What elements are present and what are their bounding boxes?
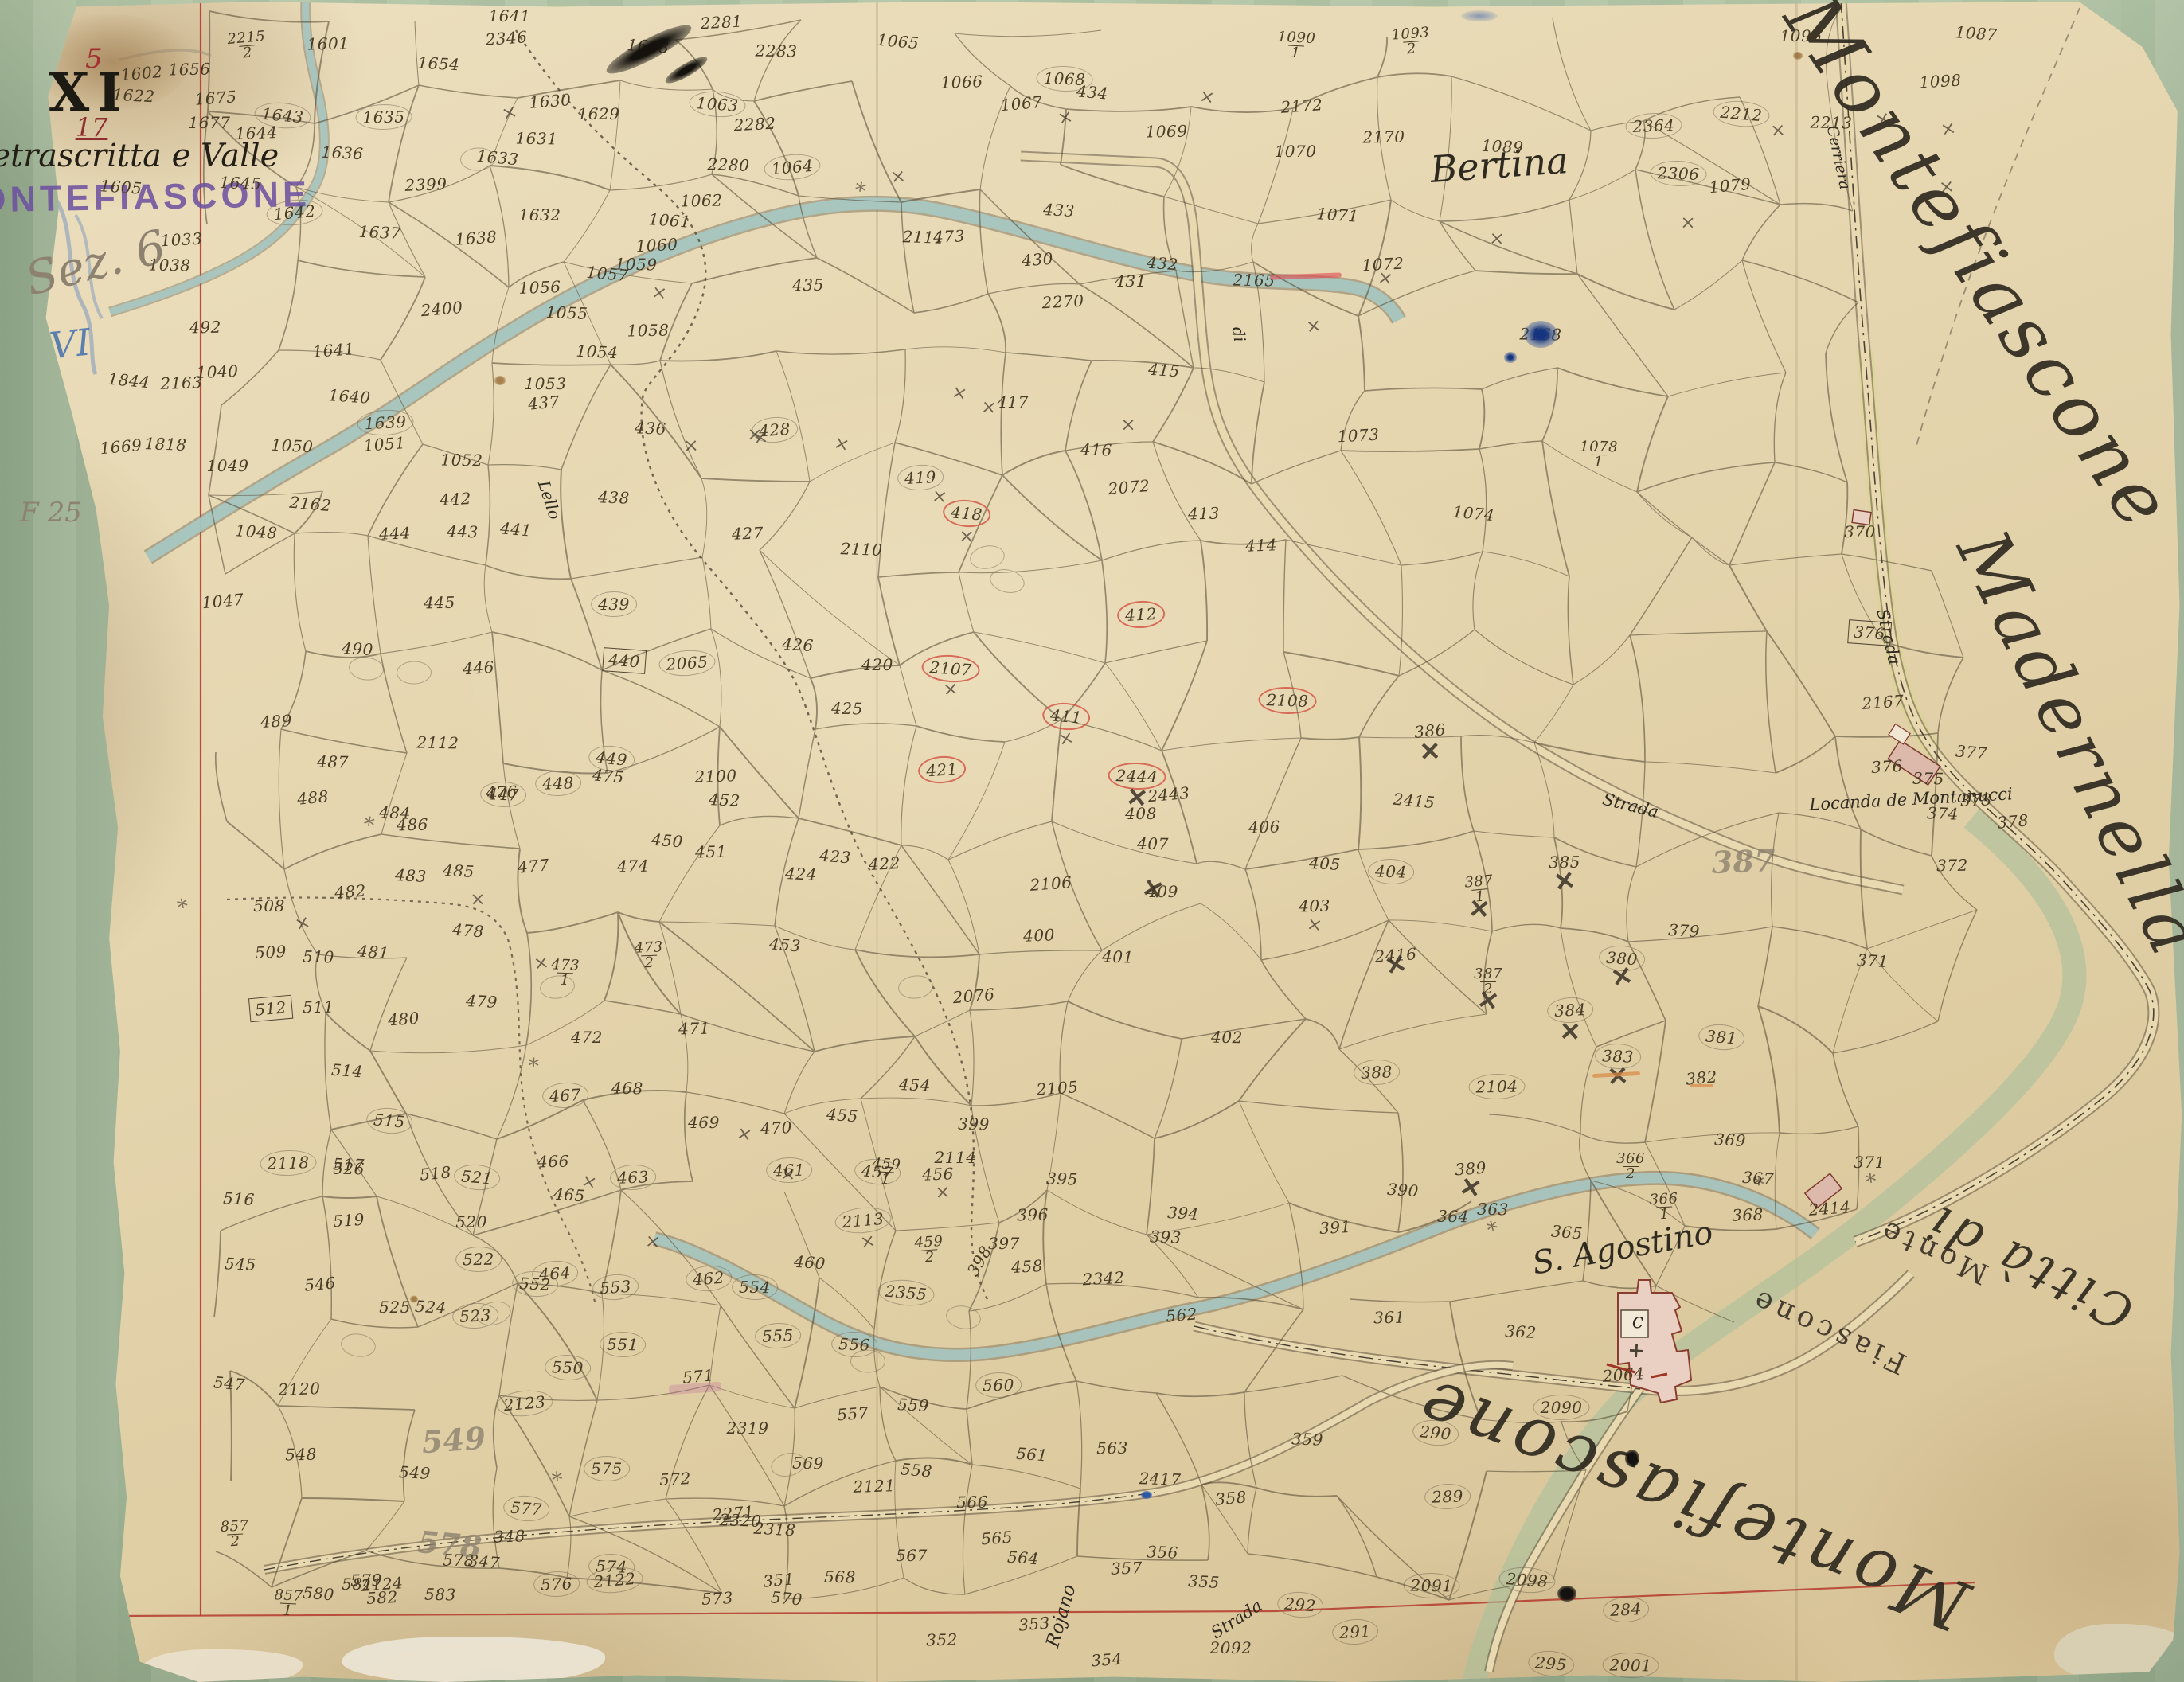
parcel-number: 561 (1015, 1444, 1048, 1465)
parcel-number: 518 (419, 1162, 452, 1184)
parcel-number: 1051 (363, 433, 406, 455)
cross-mark: ✕ (1124, 782, 1149, 814)
cross-mark: × (935, 1182, 951, 1204)
pencil-note-blue: VI (48, 320, 93, 367)
parcel-number: 403 (1299, 896, 1330, 916)
parcel-number: 376 (1871, 756, 1904, 777)
parcel-number: 451 (695, 842, 727, 862)
parcel-number: 2111 (902, 227, 945, 248)
parcel-number: 2281 (700, 12, 743, 33)
parcel-number: 1047 (201, 590, 245, 613)
parcel-number: 1074 (1452, 502, 1496, 525)
parcel-number: 2280 (707, 154, 750, 175)
parcel-number: 422 (869, 853, 901, 874)
parcel-number: 546 (303, 1273, 337, 1294)
parcel-number: 1622 (112, 85, 155, 107)
parcel-number: 2064 (1602, 1364, 1645, 1386)
parcel-number: 406 (1248, 817, 1281, 837)
parcel-number: 2283 (755, 41, 797, 61)
parcel-number: 415 (1147, 360, 1180, 381)
parcel-number: 442 (440, 489, 472, 509)
parcel-number: 394 (1167, 1203, 1200, 1223)
parcel-number: 458 (1011, 1256, 1044, 1277)
parcel-number: 445 (424, 593, 455, 613)
parcel-number: 1677 (189, 113, 231, 132)
parcel-number: 362 (1505, 1321, 1537, 1342)
rust-blot (1793, 52, 1803, 60)
parcel-number: 565 (980, 1528, 1013, 1549)
district-title: Pietrascritta e Valle (0, 138, 279, 174)
cross-mark: × (1305, 315, 1323, 338)
parcel-number: 440 (602, 647, 647, 674)
cross-mark: * (528, 1054, 540, 1079)
parcel-number: 568 (824, 1567, 856, 1587)
parcel-number: 390 (1386, 1180, 1419, 1201)
parcel-number: 417 (997, 392, 1029, 412)
parcel-number: 359 (1291, 1429, 1324, 1449)
parcel-number: 1038 (148, 256, 190, 275)
cross-mark: × (1489, 228, 1506, 250)
parcel-number: 510 (303, 947, 334, 967)
parcel-number: 525 (379, 1298, 411, 1317)
parcel-number: 2342 (1082, 1268, 1125, 1290)
parcel-number: 399 (958, 1114, 990, 1134)
parcel-number: 347 (467, 1551, 501, 1572)
parcel-number: 439 (591, 591, 637, 617)
parcel-number: 1058 (627, 321, 669, 341)
parcel-number: 480 (387, 1009, 420, 1030)
parcel-number: 1632 (519, 205, 561, 224)
parcel-number: 374 (1927, 803, 1959, 823)
parcel-number: 1073 (1337, 425, 1380, 447)
cross-mark: + (1627, 1338, 1646, 1363)
cross-mark: × (683, 435, 699, 457)
parcel-number: 393 (1150, 1227, 1182, 1247)
parcel-number: 1053 (525, 374, 567, 393)
parcel-number: 1069 (1145, 122, 1187, 142)
parcel-number: 545 (225, 1254, 257, 1274)
parcel-number: 378 (1996, 810, 2030, 832)
parcel-number: 583 (424, 1585, 456, 1605)
cross-mark: × (942, 678, 959, 701)
parcel-number: 1098 (1919, 71, 1962, 92)
parcel-number: 516 (223, 1188, 256, 1209)
parcel-number: 453 (768, 934, 802, 955)
parcel-number: 364 (1437, 1207, 1469, 1227)
parcel-number: 1818 (144, 434, 187, 455)
parcel-number: 1054 (576, 341, 619, 363)
parcel-number: 488 (296, 786, 330, 808)
parcel-number: 1636 (321, 142, 364, 164)
parcel-number: 1641 (312, 339, 355, 361)
parcel-number: 567 (896, 1546, 928, 1565)
cross-mark: × (1377, 267, 1395, 290)
parcel-number: 357 (1111, 1558, 1143, 1578)
parcel-number: 1675 (194, 87, 237, 109)
parcel-number: 489 (260, 711, 293, 732)
parcel-number: 369 (1714, 1130, 1747, 1150)
parcel-number: 401 (1102, 946, 1135, 966)
parcel-number: 407 (1137, 834, 1169, 854)
map-canvas (0, 0, 2184, 1682)
parcel-number: 452 (709, 790, 741, 810)
parcel-number: 487 (317, 752, 349, 772)
parcel-number: 2415 (1393, 790, 1436, 813)
parcel-number: 1645 (219, 173, 262, 193)
cross-mark: ✕ (1552, 864, 1577, 898)
parcel-number: 376 (1847, 619, 1892, 646)
parcel-number: 1033 (160, 229, 203, 251)
parcel-number: 400 (1023, 925, 1056, 945)
parcel-number: 2417 (1139, 1469, 1182, 1489)
bluedot-blot (1141, 1491, 1152, 1499)
parcel-number: 355 (1188, 1571, 1221, 1592)
parcel-number: 471 (678, 1019, 710, 1039)
parcel-number: 10901 (1276, 26, 1316, 61)
parcel-number: 1089 (1481, 136, 1524, 158)
parcel-number: 1656 (168, 60, 210, 80)
parcel-number: 547 (213, 1372, 246, 1394)
parcel-number: 8571 (273, 1584, 303, 1619)
parcel-number: 460 (793, 1252, 826, 1274)
parcel-number: 446 (462, 658, 494, 679)
parcel-number: 2100 (694, 766, 737, 786)
parcel-number: 430 (1021, 249, 1053, 271)
parcel-number: 2167 (1862, 691, 1905, 713)
parcel-number: 2114 (935, 1148, 977, 1167)
parcel-number: 2346 (485, 27, 528, 49)
parcel-number: 375 (1912, 769, 1944, 789)
parcel-number: 476 (486, 782, 518, 802)
parcel-number: 563 (1096, 1438, 1128, 1458)
parcel-number: 468 (611, 1079, 643, 1099)
parcel-number: 1057 (586, 263, 630, 286)
cross-mark: ✕ (1467, 893, 1491, 925)
parcel-number: 414 (1245, 535, 1278, 555)
parcel-number: 1052 (440, 451, 483, 470)
parcel-number: 481 (357, 941, 390, 962)
parcel-number: 548 (285, 1445, 317, 1465)
parcel-number: 1071 (1316, 204, 1359, 226)
cadastral-map-scan: 5 XI 17 Pietrascritta e Valle MONTEFIASC… (0, 0, 2184, 1682)
parcel-number: 1629 (578, 104, 620, 123)
parcel-number: 526 (333, 1159, 365, 1179)
parcel-number: 373 (1960, 790, 1993, 810)
parcel-number: 455 (826, 1105, 858, 1126)
parcel-number: 22152 (226, 25, 267, 62)
parcel-number: 1070 (1275, 142, 1317, 161)
parcel-number: 444 (379, 523, 412, 543)
parcel-number: 1049 (207, 456, 249, 475)
parcel-number: 2318 (753, 1519, 796, 1540)
parcel-number: 511 (303, 997, 334, 1017)
cross-mark: * (1753, 1173, 1764, 1198)
parcel-number: 3661 (1649, 1188, 1679, 1223)
parcel-number: 420 (861, 655, 893, 674)
parcel-number: 10932 (1391, 21, 1432, 57)
parcel-number: 509 (255, 942, 287, 962)
parcel-number: 558 (900, 1459, 933, 1481)
parcel-number: 554 (732, 1274, 778, 1300)
parcel-number: 413 (1188, 504, 1220, 524)
cross-mark: × (1938, 176, 1955, 198)
parcel-number: 514 (330, 1060, 363, 1082)
parcel-number: 4591 (871, 1153, 901, 1188)
cross-mark: × (1769, 119, 1786, 141)
parcel-number: 2092 (1210, 1638, 1252, 1657)
parcel-number: 377 (1955, 741, 1988, 763)
parcel-number: 492 (189, 318, 221, 338)
municipality-stamp: MONTEFIASCONE (0, 174, 311, 221)
parcel-number: 2162 (289, 493, 333, 516)
parcel-number: 524 (414, 1297, 447, 1318)
parcel-number: 10781 (1580, 436, 1619, 470)
pencil-note-f: F 25 (20, 497, 82, 529)
parcel-number: 2163 (160, 373, 203, 393)
blk-blot (1557, 1586, 1576, 1602)
parcel-number: 482 (334, 881, 366, 903)
parcel-number: 2270 (1041, 291, 1084, 313)
parcel-number: 562 (1165, 1304, 1198, 1325)
parcel-number: 1601 (307, 34, 349, 54)
parcel-number: 573 (701, 1588, 734, 1609)
place-label: c (1632, 1309, 1644, 1333)
parcel-number: 1654 (417, 53, 460, 75)
parcel-number: 566 (956, 1493, 988, 1512)
cross-mark: × (1680, 213, 1696, 233)
cross-mark: × (1305, 914, 1323, 937)
parcel-number: 356 (1147, 1542, 1179, 1562)
parcel-number: 427 (732, 523, 764, 543)
parcel-number: 575 (584, 1456, 630, 1481)
parcel-number: 363 (1477, 1200, 1509, 1220)
cross-mark: ✕ (1559, 1016, 1582, 1047)
parcel-number: 405 (1309, 853, 1342, 874)
parcel-number: 469 (688, 1113, 720, 1132)
parcel-number: 431 (1115, 271, 1147, 291)
parcel-number: 2072 (1108, 476, 1151, 499)
parcel-number: 519 (332, 1210, 365, 1231)
parcel-number: 2165 (1233, 271, 1275, 291)
rust-blot (410, 1296, 418, 1303)
parcel-number: 3662 (1616, 1148, 1645, 1181)
parcel-number: 1061 (648, 209, 691, 232)
parcel-number: 2443 (1147, 783, 1191, 806)
parcel-number: 2414 (1808, 1197, 1851, 1220)
parcel-number: 490 (342, 638, 374, 659)
parcel-number: 416 (1080, 440, 1112, 460)
parcel-number: 8572 (220, 1515, 250, 1550)
parcel-number: 352 (926, 1630, 958, 1650)
parcel-number: 441 (499, 518, 533, 540)
parcel-number: 365 (1550, 1221, 1584, 1243)
parcel-number: 450 (651, 830, 683, 852)
parcel-number: 1056 (518, 277, 561, 298)
blk-blot (1625, 1450, 1639, 1467)
parcel-number: 379 (1668, 920, 1701, 941)
parcel-number: 425 (831, 699, 863, 719)
parcel-number: 395 (1046, 1169, 1079, 1188)
parcel-number: 371 (1854, 1153, 1885, 1172)
parcel-number: 1669 (100, 435, 143, 459)
parcel-number: 483 (395, 865, 428, 886)
parcel-number: 434 (1076, 81, 1109, 103)
parcel-number: 474 (617, 857, 649, 876)
parcel-number: 2213 (1810, 113, 1852, 133)
parcel-number: 1637 (358, 222, 401, 244)
parcel-number: 484 (379, 802, 412, 822)
cross-mark: × (651, 282, 669, 304)
parcel-number: 2112 (416, 733, 459, 753)
blue-blot (1504, 352, 1517, 363)
parcel-number: 1067 (1000, 92, 1044, 115)
parcel-number: 549 (420, 1420, 487, 1461)
parcel-number: 358 (1214, 1487, 1248, 1508)
parcel-number: 1640 (328, 385, 371, 408)
parcel-number: 2110 (840, 539, 883, 560)
parcel-number: 387 (1711, 842, 1776, 880)
parcel-number: 354 (1090, 1649, 1123, 1671)
parcel-number: 1630 (529, 90, 572, 112)
parcel-number: 2172 (1280, 95, 1323, 117)
parcel-number: 1605 (100, 176, 143, 198)
parcel-number: 580 (302, 1583, 334, 1605)
parcel-number: 570 (770, 1587, 803, 1609)
parcel-number: 424 (785, 864, 818, 884)
parcel-number: 368 (1732, 1204, 1764, 1224)
parcel-number: 549 (399, 1462, 432, 1483)
parcel-number: 443 (447, 522, 479, 542)
parcel-number: 438 (598, 487, 631, 507)
parcel-number: 1065 (877, 30, 920, 53)
parcel-number: 435 (792, 275, 824, 295)
parcel-number: 1602 (120, 62, 164, 85)
blue-blot (1524, 321, 1557, 348)
pencil-oval-mark (850, 1349, 885, 1373)
parcel-number: 396 (1017, 1205, 1049, 1225)
parcel-number: 1087 (1955, 22, 1998, 45)
cross-mark: × (959, 526, 975, 548)
parcel-number: 564 (1006, 1547, 1039, 1569)
parcel-number: 2400 (420, 298, 464, 321)
cross-mark: ✕ (1419, 736, 1441, 767)
parcel-number: 472 (571, 1028, 603, 1047)
parcel-number: 2120 (278, 1379, 321, 1399)
parcel-number: 572 (659, 1469, 692, 1489)
cross-mark: × (889, 166, 907, 188)
parcel-number: 485 (443, 861, 475, 881)
parcel-number: 423 (819, 846, 851, 868)
parcel-number: 353 (1018, 1613, 1051, 1634)
parcel-number: 1066 (940, 72, 983, 92)
parcel-number: 1641 (489, 6, 531, 25)
cross-mark: × (470, 889, 486, 910)
parcel-number: 2076 (952, 985, 996, 1008)
cross-mark: × (644, 1231, 662, 1253)
cross-mark: × (931, 486, 948, 508)
parcel-number: 348 (494, 1526, 526, 1546)
torn-edge-bottom (342, 1637, 605, 1682)
parcel-number: 2105 (1036, 1077, 1079, 1099)
parcel-number: 1079 (1709, 174, 1752, 197)
parcel-number: 520 (455, 1212, 487, 1231)
cross-mark: * (551, 1468, 564, 1493)
parcel-number: 478 (451, 920, 484, 942)
parcel-number: 433 (1043, 200, 1076, 220)
parcel-number: 432 (1146, 253, 1178, 275)
parcel-number: 1055 (545, 302, 588, 323)
parcel-number: 582 (366, 1587, 399, 1608)
parcel-number: 1638 (455, 227, 498, 249)
map-sheet-paper (0, 0, 2184, 1682)
parcel-number: 1048 (235, 521, 278, 543)
parcel-number: 1096 (1780, 26, 1823, 45)
parcel-number: 1844 (107, 369, 151, 392)
parcel-number: 477 (517, 855, 550, 876)
orange-blot (1690, 1084, 1713, 1087)
parcel-number: 2090 (1533, 1395, 1590, 1420)
parcel-number: 426 (782, 634, 815, 655)
parcel-number: 512 (248, 995, 293, 1023)
cross-mark: * (1864, 1169, 1877, 1195)
parcel-number: 361 (1373, 1308, 1405, 1328)
parcel-number: 2399 (404, 174, 447, 195)
parcel-number: 1050 (271, 435, 314, 457)
parcel-number: 4592 (914, 1231, 945, 1266)
parcel-number: 2319 (727, 1419, 769, 1438)
parcel-number: 557 (836, 1403, 869, 1425)
parcel-number: 2106 (1029, 872, 1072, 895)
parcel-number: 466 (537, 1152, 569, 1172)
parcel-number: 1644 (235, 123, 278, 143)
parcel-number: 508 (253, 896, 285, 915)
parcel-number: 402 (1211, 1028, 1243, 1048)
parcel-number: 4732 (634, 936, 663, 970)
parcel-number: 371 (1857, 950, 1889, 971)
cross-mark: × (980, 396, 997, 419)
parcel-number: 470 (760, 1118, 793, 1138)
parcel-number: 1631 (515, 129, 557, 149)
parcel-number: 370 (1844, 522, 1876, 541)
parcel-number: 2170 (1362, 127, 1405, 147)
rust-blot (494, 376, 506, 385)
parcel-number: 2121 (853, 1476, 896, 1497)
parcel-number: 1060 (635, 235, 678, 256)
parcel-number: 479 (466, 991, 498, 1012)
parcel-number: 2271 (712, 1502, 756, 1525)
parcel-number: 391 (1319, 1217, 1352, 1238)
place-label: di (1229, 325, 1250, 343)
parcel-number: 372 (1936, 856, 1968, 876)
parcel-number: 436 (635, 418, 667, 438)
parcel-number: 1062 (680, 191, 722, 211)
cross-mark: × (751, 427, 769, 450)
parcel-number: 454 (899, 1075, 932, 1095)
parcel-number: 475 (592, 765, 625, 786)
parcel-number: 559 (897, 1395, 930, 1415)
cross-mark: × (533, 952, 551, 974)
bluesm-blot (1461, 10, 1498, 21)
cross-mark: × (1120, 415, 1135, 435)
cross-mark: × (779, 1163, 796, 1184)
parcel-number: 2282 (733, 114, 776, 135)
parcel-number: 437 (527, 392, 561, 413)
parcel-number: 551 (600, 1331, 646, 1357)
